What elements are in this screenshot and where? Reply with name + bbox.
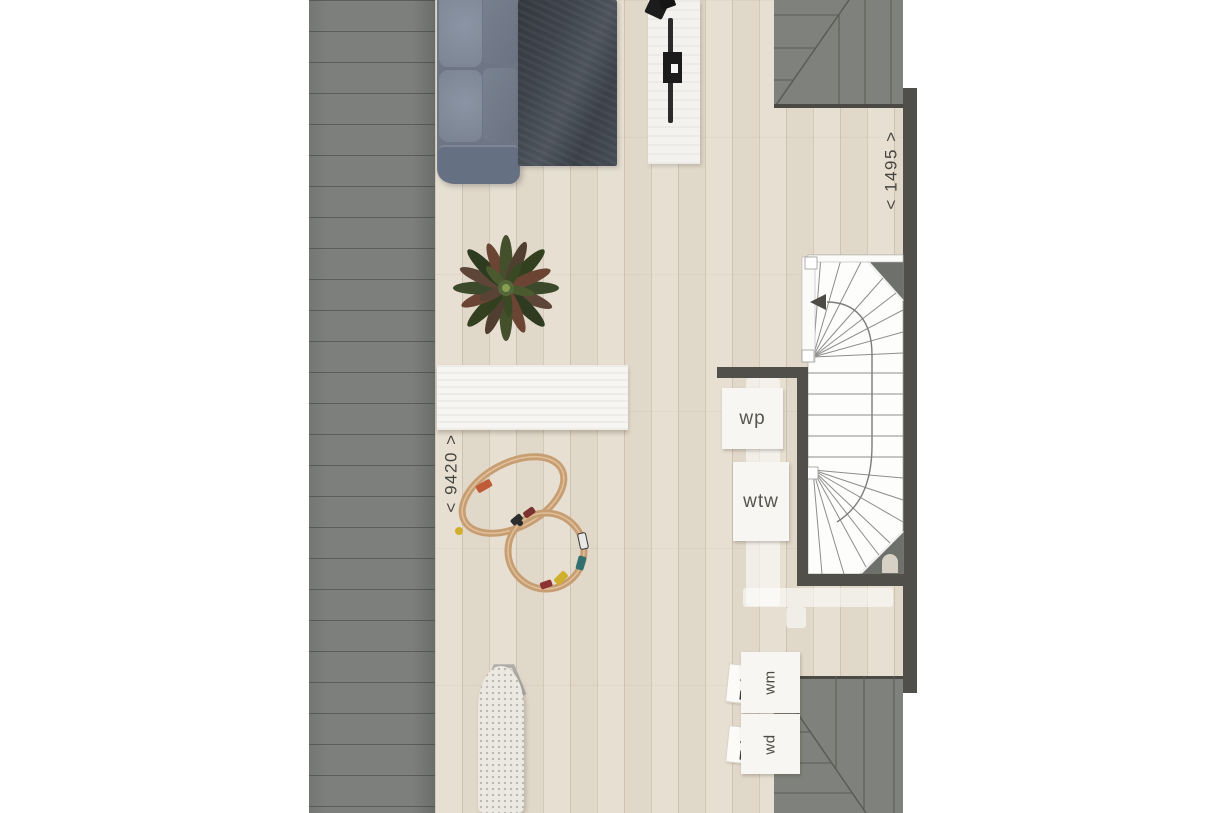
sofa: [437, 0, 520, 183]
toy-train-track: [445, 445, 595, 595]
heat-recovery-label: wtw: [743, 491, 779, 513]
tv-stand: [663, 52, 682, 83]
dryer-unit: wd: [741, 714, 800, 774]
sofa-seat-cushion: [483, 0, 518, 65]
heat-recovery-unit: wtw: [733, 462, 789, 541]
tv-cabinet: [648, 0, 700, 164]
ironing-board: [465, 650, 545, 813]
rug: [518, 0, 617, 166]
floor-plan: < 9420 > < 1495 >: [0, 0, 1220, 813]
sofa-armrest: [438, 145, 519, 184]
roof-corner-top-right: [774, 0, 903, 108]
sofa-back-cushion: [439, 70, 482, 142]
wall-stair-top: [717, 367, 808, 378]
dryer-label: wd: [762, 734, 779, 754]
sofa-back-cushion: [439, 0, 482, 67]
washing-machine-unit: wm: [741, 652, 800, 713]
sofa-seat-cushion: [483, 68, 518, 142]
tv-stand-detail: [671, 64, 678, 73]
staircase: [797, 250, 917, 590]
ventilation-duct: [743, 588, 893, 607]
heat-pump-unit: wp: [722, 388, 783, 449]
ironing-board-cover: [478, 666, 524, 813]
table: [437, 365, 628, 430]
ventilation-duct: [786, 607, 806, 628]
plant: [446, 228, 566, 348]
heat-pump-label: wp: [739, 408, 765, 430]
roof-left-planks: [309, 0, 436, 813]
washing-machine-label: wm: [762, 670, 779, 694]
